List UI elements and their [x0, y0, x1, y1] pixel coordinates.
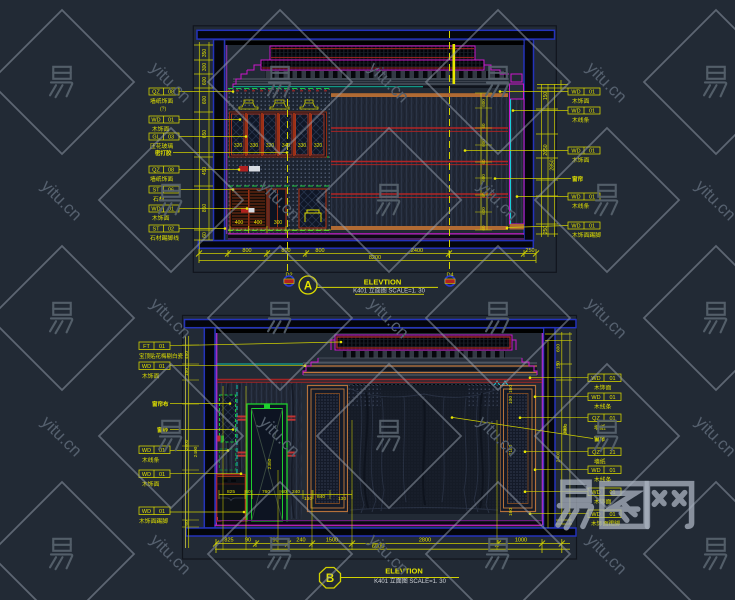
svg-text:墙纸饰面: 墙纸饰面	[150, 97, 173, 105]
svg-text:木线条: 木线条	[142, 456, 160, 464]
svg-text:QZ: QZ	[152, 168, 160, 174]
svg-text:WD: WD	[571, 149, 580, 155]
svg-text:130: 130	[338, 496, 346, 502]
svg-text:2650: 2650	[543, 144, 549, 155]
svg-text:60: 60	[184, 520, 190, 526]
svg-text:窗帘: 窗帘	[572, 175, 584, 183]
svg-text:01: 01	[159, 509, 165, 515]
svg-text:WD: WD	[142, 448, 151, 454]
svg-text:320: 320	[234, 143, 243, 149]
svg-text:木饰面: 木饰面	[594, 384, 612, 392]
svg-text:01: 01	[609, 395, 615, 401]
svg-text:1000: 1000	[515, 538, 527, 544]
svg-text:01: 01	[589, 109, 595, 115]
svg-text:160: 160	[508, 508, 514, 516]
svg-text:WD: WD	[571, 224, 580, 230]
svg-text:K401 立面图 SCALE=1. 30: K401 立面图 SCALE=1. 30	[353, 286, 426, 294]
svg-text:WD: WD	[571, 90, 580, 96]
svg-text:08: 08	[168, 168, 174, 174]
svg-text:01: 01	[589, 149, 595, 155]
svg-text:FT: FT	[143, 344, 150, 350]
svg-text:WD: WD	[571, 195, 580, 201]
svg-text:2800: 2800	[419, 538, 431, 544]
svg-text:A: A	[304, 281, 312, 293]
svg-text:450: 450	[184, 351, 190, 359]
svg-text:木线条: 木线条	[594, 403, 612, 411]
svg-text:WD: WD	[142, 364, 151, 370]
svg-text:WD: WD	[591, 468, 600, 474]
svg-text:WD: WD	[591, 395, 600, 401]
svg-text:330: 330	[298, 143, 307, 149]
svg-text:240: 240	[296, 538, 305, 544]
svg-text:木线条: 木线条	[572, 116, 590, 124]
svg-text:850: 850	[202, 204, 208, 213]
svg-text:2400: 2400	[193, 446, 199, 457]
svg-text:400: 400	[254, 220, 263, 226]
svg-text:450: 450	[202, 167, 208, 176]
svg-text:01: 01	[609, 468, 615, 474]
svg-text:(?): (?)	[160, 107, 166, 113]
svg-text:21: 21	[609, 450, 615, 456]
svg-text:密打胶: 密打胶	[155, 149, 172, 157]
svg-text:01: 01	[609, 376, 615, 382]
svg-text:木饰面踢脚: 木饰面踢脚	[139, 517, 168, 525]
svg-text:01: 01	[589, 90, 595, 96]
svg-text:石材踢脚线: 石材踢脚线	[150, 234, 179, 242]
svg-text:300: 300	[562, 426, 568, 434]
svg-text:ELEVTION: ELEVTION	[364, 278, 402, 287]
svg-text:600: 600	[202, 77, 208, 86]
svg-text:600: 600	[202, 96, 208, 105]
svg-text:K401 立面图 SCALE=1. 30: K401 立面图 SCALE=1. 30	[374, 577, 447, 585]
svg-text:木饰面踢脚: 木饰面踢脚	[572, 231, 601, 239]
svg-text:840: 840	[317, 494, 325, 500]
svg-text:825: 825	[224, 538, 233, 544]
svg-text:150: 150	[184, 368, 190, 376]
svg-text:825: 825	[227, 489, 235, 495]
svg-text:WD: WD	[151, 118, 160, 124]
svg-text:2350: 2350	[267, 458, 273, 469]
svg-text:QZ: QZ	[152, 90, 160, 96]
svg-text:03: 03	[168, 135, 174, 141]
svg-text:宝顶贴花梅剔白瓷: 宝顶贴花梅剔白瓷	[139, 352, 184, 360]
svg-text:木线条: 木线条	[572, 202, 590, 210]
svg-text:600: 600	[481, 207, 486, 215]
svg-text:60: 60	[481, 123, 486, 129]
svg-text:ST: ST	[152, 188, 160, 194]
svg-text:墙纸饰面: 墙纸饰面	[150, 175, 173, 183]
svg-text:600: 600	[481, 99, 486, 107]
svg-text:350: 350	[202, 49, 208, 58]
svg-text:木饰面: 木饰面	[152, 214, 170, 222]
svg-text:01: 01	[589, 224, 595, 230]
svg-text:400: 400	[235, 220, 244, 226]
svg-text:01: 01	[609, 512, 615, 518]
svg-text:窗帘布: 窗帘布	[152, 400, 169, 408]
svg-text:60: 60	[281, 489, 287, 495]
svg-text:330: 330	[250, 143, 259, 149]
svg-text:150: 150	[543, 92, 549, 101]
svg-text:01: 01	[159, 472, 165, 478]
svg-text:QZ: QZ	[592, 450, 600, 456]
svg-text:100: 100	[508, 396, 514, 404]
svg-text:ST: ST	[152, 227, 160, 233]
svg-text:墙纸: 墙纸	[594, 458, 606, 466]
svg-text:02: 02	[168, 227, 174, 233]
svg-text:60: 60	[481, 225, 486, 231]
svg-text:01: 01	[589, 195, 595, 201]
svg-text:800: 800	[315, 248, 324, 254]
svg-text:650: 650	[202, 130, 208, 139]
svg-text:WD: WD	[142, 509, 151, 515]
svg-text:2850: 2850	[550, 159, 556, 170]
svg-text:木饰面: 木饰面	[572, 97, 590, 105]
svg-text:60: 60	[481, 159, 486, 165]
svg-text:300: 300	[274, 220, 283, 226]
svg-text:600: 600	[556, 344, 562, 352]
svg-text:WD: WD	[142, 472, 151, 478]
svg-text:01: 01	[159, 344, 165, 350]
svg-text:01: 01	[168, 118, 174, 124]
svg-text:800: 800	[242, 248, 251, 254]
svg-text:2800: 2800	[184, 439, 190, 450]
svg-text:01: 01	[159, 364, 165, 370]
svg-text:150: 150	[556, 361, 562, 369]
svg-text:250: 250	[543, 226, 549, 235]
svg-text:320: 320	[314, 143, 323, 149]
svg-text:300: 300	[202, 63, 208, 72]
svg-text:160: 160	[508, 385, 514, 393]
svg-text:WD: WD	[571, 109, 580, 115]
svg-text:130: 130	[304, 496, 312, 502]
